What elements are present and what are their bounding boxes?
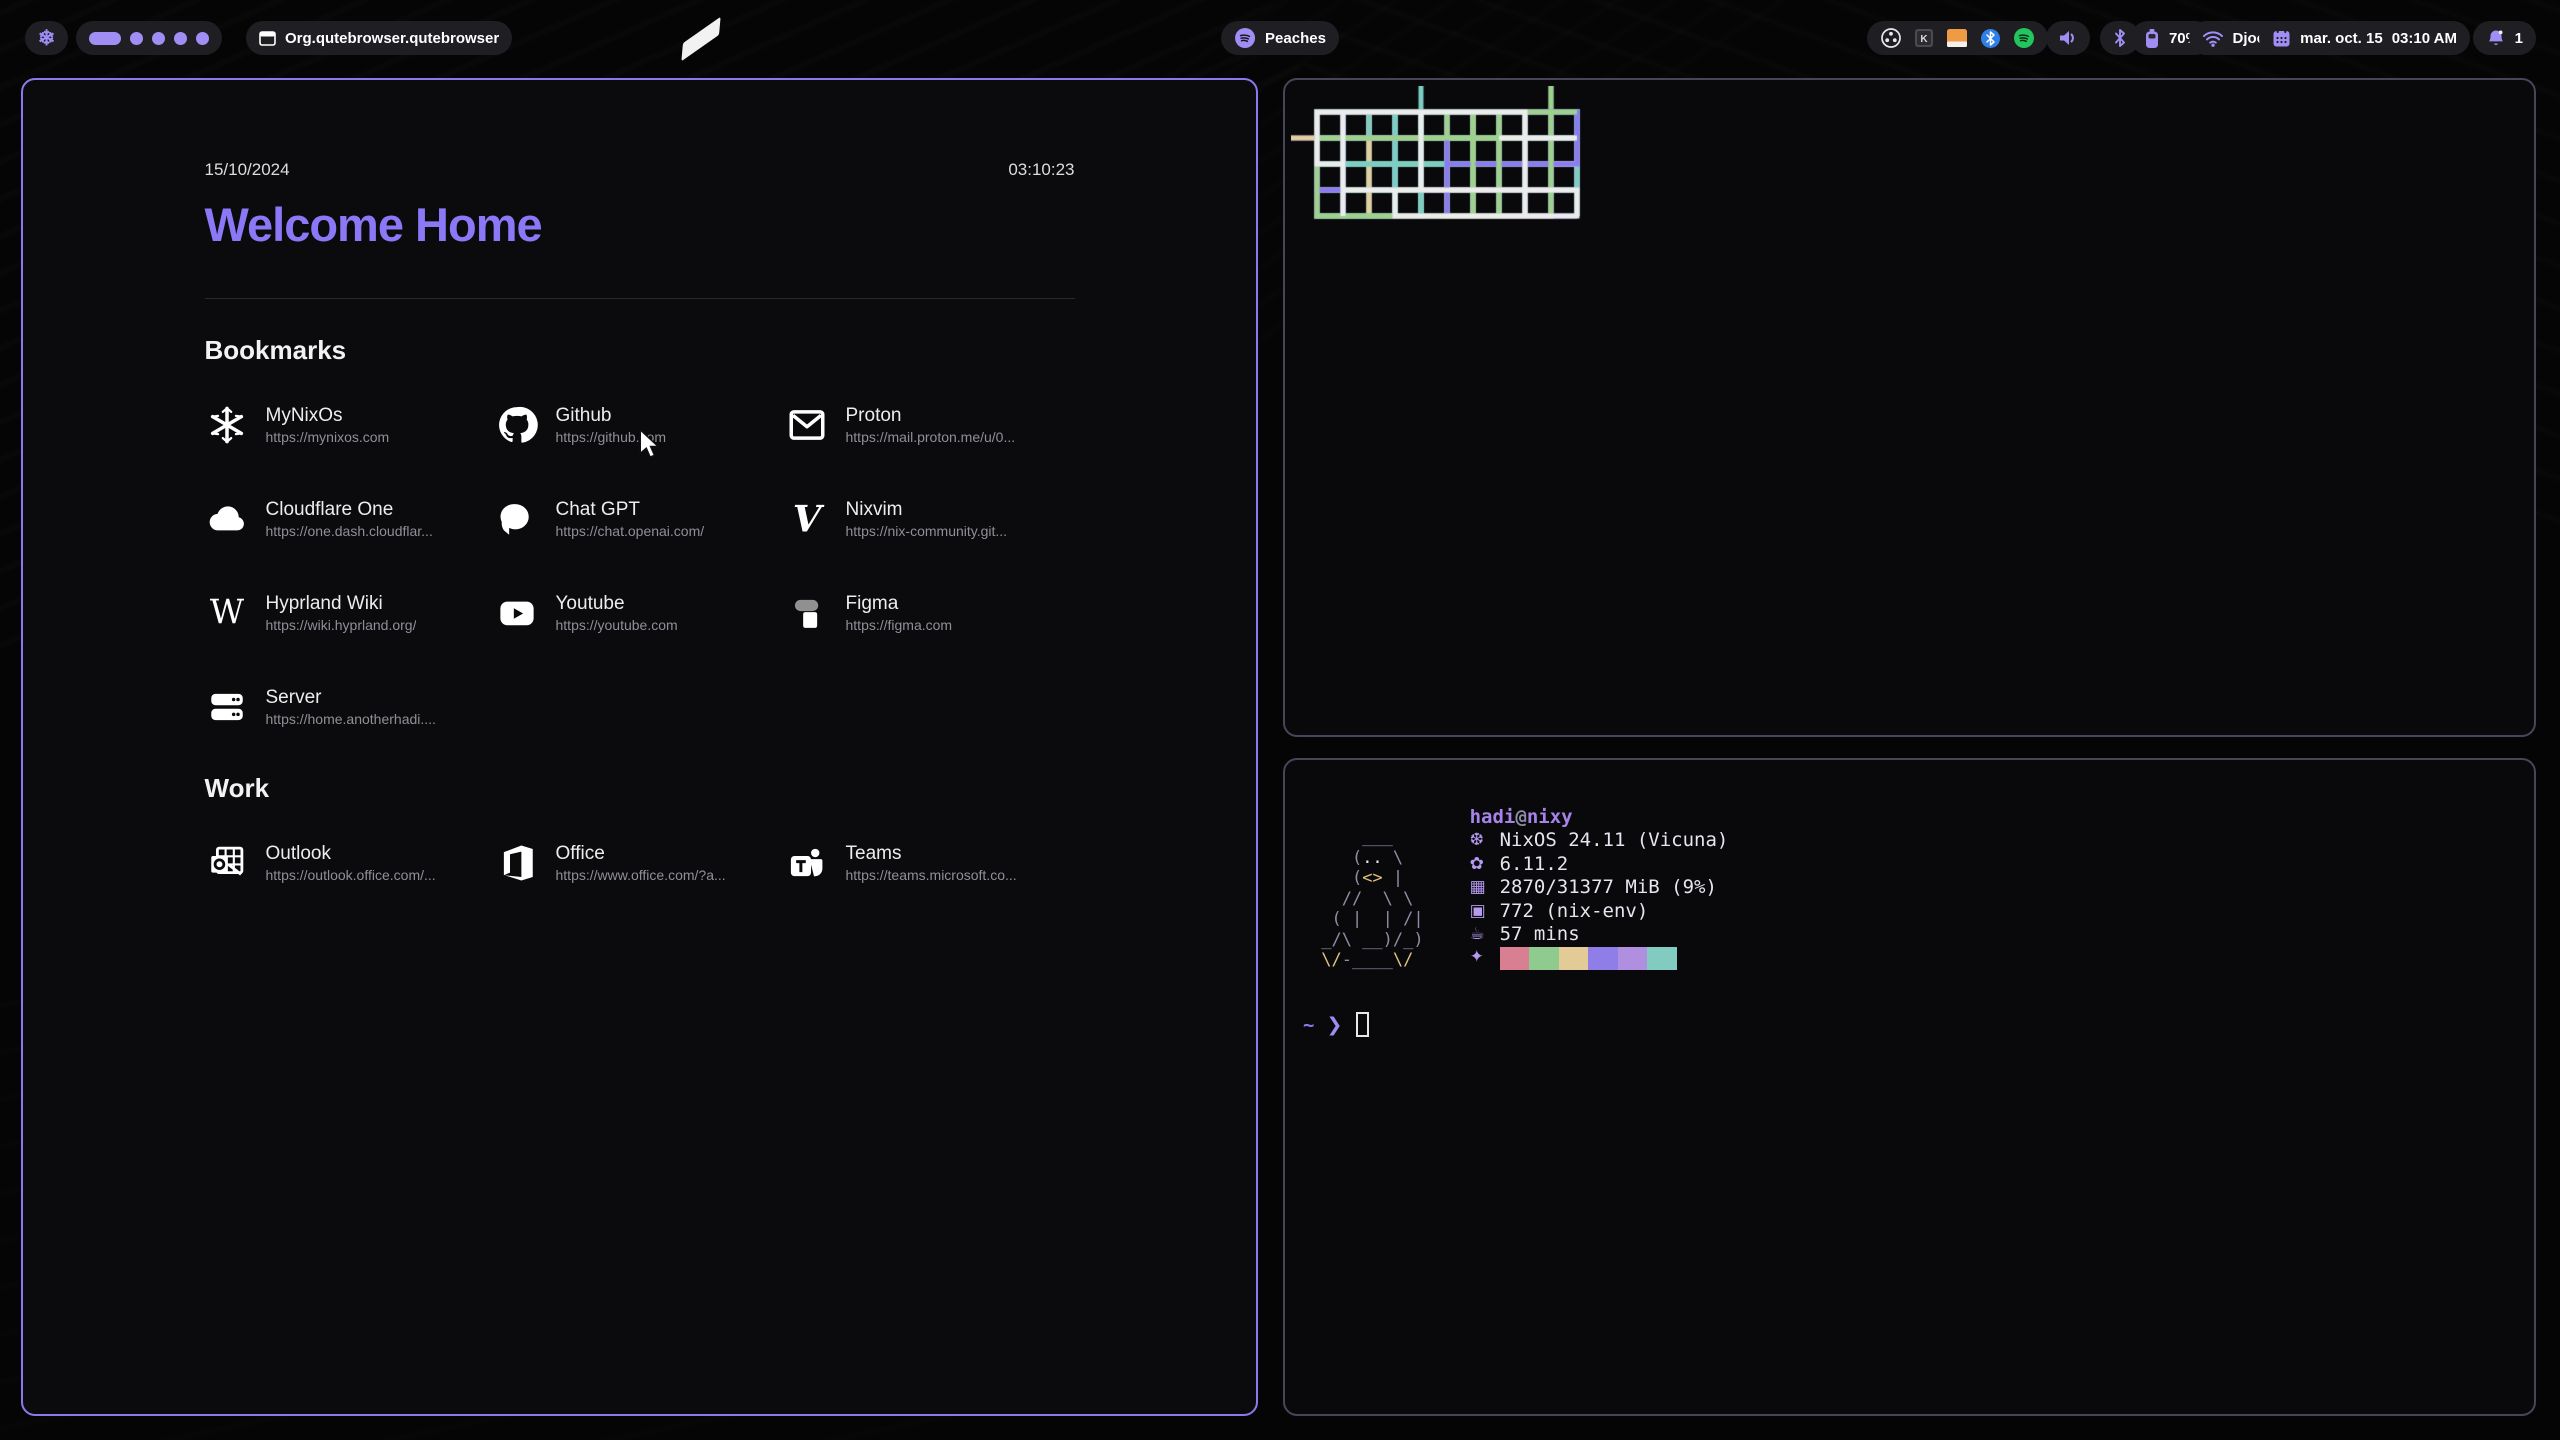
bookmark-name: Figma — [846, 593, 899, 614]
pipes-terminal-window — [1283, 78, 2536, 737]
terminal-color-swatch — [1559, 947, 1589, 970]
workspace-switcher[interactable] — [76, 21, 222, 55]
bookmark-item[interactable]: VNixvimhttps://nix-community.git... — [785, 489, 1075, 549]
bell-icon — [2486, 28, 2506, 48]
teams-icon — [785, 841, 829, 885]
fastfetch-output: ___ (.. \ (<> | // \ \ ( | | /| _/\ __)/… — [1285, 760, 2534, 971]
qutebrowser-window: 15/10/2024 03:10:23 Welcome Home Bookmar… — [21, 78, 1258, 1416]
office-icon — [495, 841, 539, 885]
memory-icon: ▦ — [1470, 876, 1500, 899]
terminal-color-swatch — [1588, 947, 1618, 970]
workspace-indicator[interactable] — [152, 32, 165, 45]
spotify-icon — [1234, 27, 1256, 49]
bookmark-name: Youtube — [556, 593, 625, 614]
bookmark-name: Nixvim — [846, 499, 903, 520]
bookmark-item[interactable]: WHyprland Wikihttps://wiki.hyprland.org/ — [205, 583, 495, 643]
bookmark-item[interactable]: MyNixOshttps://mynixos.com — [205, 395, 495, 455]
fetch-info-text: 772 (nix-env) — [1500, 900, 1649, 923]
workspace-indicator-active[interactable] — [89, 32, 121, 45]
bookmark-name: Cloudflare One — [266, 499, 394, 520]
wikipedia-icon: W — [205, 591, 249, 635]
notification-count: 1 — [2515, 30, 2523, 47]
section-heading: Work — [205, 773, 1075, 803]
terminal-cursor — [1356, 1012, 1369, 1037]
bookmark-item[interactable]: Chat GPThttps://chat.openai.com/ — [495, 489, 785, 549]
bookmark-item[interactable]: Protonhttps://mail.proton.me/u/0... — [785, 395, 1075, 455]
bookmark-name: Outlook — [266, 843, 331, 864]
bookmark-name: Hyprland Wiki — [266, 593, 383, 614]
svg-text:V: V — [792, 498, 824, 540]
packages-icon: ▣ — [1470, 900, 1500, 923]
fetch-terminal-window[interactable]: ___ (.. \ (<> | // \ \ ( | | /| _/\ __)/… — [1283, 758, 2536, 1416]
bookmark-item[interactable]: Serverhttps://home.anotherhadi.... — [205, 677, 495, 737]
terminal-color-swatch — [1500, 947, 1530, 970]
bookmark-url: https://www.office.com/?a... — [556, 866, 726, 885]
bookmark-name: Server — [266, 687, 322, 708]
svg-text:W: W — [209, 593, 244, 632]
file-manager-tray-icon[interactable] — [1946, 28, 1968, 48]
fetch-info-text: 57 mins — [1500, 923, 1580, 946]
fetch-info-line: ✦ — [1470, 946, 1729, 969]
fetch-info-text: 6.11.2 — [1500, 853, 1569, 876]
fetch-info-line: ▦2870/31377 MiB (9%) — [1470, 876, 1729, 899]
bookmark-item[interactable]: Teamshttps://teams.microsoft.co... — [785, 833, 1075, 893]
os-icon: ❆ — [1470, 829, 1500, 852]
shell-prompt[interactable]: ~ ❯ — [1303, 1012, 1369, 1037]
fetch-info-line: ✿6.11.2 — [1470, 853, 1729, 876]
terminal-color-swatch — [1647, 947, 1677, 970]
cloud-icon — [205, 497, 249, 541]
bookmark-name: Github — [556, 405, 612, 426]
bookmark-name: Office — [556, 843, 605, 864]
system-tray[interactable]: K — [1867, 21, 2048, 55]
server-icon — [205, 685, 249, 729]
fetch-info-line: ▣772 (nix-env) — [1470, 900, 1729, 923]
start-page: 15/10/2024 03:10:23 Welcome Home Bookmar… — [205, 80, 1075, 893]
now-playing-pill[interactable]: Peaches — [1221, 21, 1339, 55]
bookmark-name: Chat GPT — [556, 499, 640, 520]
bookmark-item[interactable]: Officehttps://www.office.com/?a... — [495, 833, 785, 893]
bookmark-url: https://youtube.com — [556, 616, 678, 635]
fetch-info-text: 2870/31377 MiB (9%) — [1500, 876, 1717, 899]
speaker-icon — [2058, 29, 2078, 47]
keepassxc-tray-icon[interactable]: K — [1914, 28, 1934, 48]
fetch-user: hadi — [1470, 806, 1516, 829]
nix-icon — [205, 403, 249, 447]
active-window-title: Org.qutebrowser.qutebrowser — [285, 30, 499, 47]
clock-pill[interactable]: mar. oct. 15 03:10 AM — [2259, 21, 2470, 55]
workspace-indicator[interactable] — [130, 32, 143, 45]
page-title: Welcome Home — [205, 196, 1075, 254]
battery-icon — [2144, 28, 2160, 49]
tux-ascii-art: ___ (.. \ (<> | // \ \ ( | | /| _/\ __)/… — [1311, 827, 1424, 971]
bookmark-url: https://teams.microsoft.co... — [846, 866, 1017, 885]
prompt-symbol: ❯ — [1326, 1014, 1342, 1036]
bookmark-url: https://mail.proton.me/u/0... — [846, 428, 1016, 447]
bookmark-url: https://home.anotherhadi.... — [266, 710, 436, 729]
outlook-icon — [205, 841, 249, 885]
bookmark-grid: Outlookhttps://outlook.office.com/...Off… — [205, 833, 1075, 893]
palette-icon: ✦ — [1470, 946, 1500, 969]
bookmark-item[interactable]: Cloudflare Onehttps://one.dash.cloudflar… — [205, 489, 495, 549]
nix-snowflake-icon: ❄ — [38, 26, 56, 51]
user-host-line: hadi@nixy — [1470, 806, 1729, 829]
calendar-icon — [2272, 28, 2291, 48]
window-icon — [259, 31, 276, 46]
nix-menu-button[interactable]: ❄ — [25, 21, 68, 55]
fetch-info-line: ❆NixOS 24.11 (Vicuna) — [1470, 829, 1729, 852]
divider — [205, 298, 1075, 299]
terminal-color-swatch — [1529, 947, 1559, 970]
notifications-pill[interactable]: 1 — [2473, 21, 2536, 55]
start-page-date: 15/10/2024 — [205, 160, 290, 182]
bookmark-url: https://chat.openai.com/ — [556, 522, 705, 541]
bookmark-url: https://one.dash.cloudflar... — [266, 522, 433, 541]
bookmark-url: https://figma.com — [846, 616, 953, 635]
terminal-color-swatch — [1618, 947, 1648, 970]
bookmark-item[interactable]: Outlookhttps://outlook.office.com/... — [205, 833, 495, 893]
workspace-indicator[interactable] — [196, 32, 209, 45]
wifi-icon — [2202, 30, 2224, 47]
obs-tray-icon[interactable] — [1880, 27, 1902, 49]
spotify-tray-icon[interactable] — [2013, 27, 2035, 49]
github-icon — [495, 403, 539, 447]
bookmark-url: https://wiki.hyprland.org/ — [266, 616, 417, 635]
chat-icon — [495, 497, 539, 541]
fetch-at: @ — [1515, 806, 1526, 829]
youtube-icon — [495, 591, 539, 635]
start-page-clock: 03:10:23 — [1008, 160, 1074, 182]
section-heading: Bookmarks — [205, 335, 1075, 365]
top-bar: ❄ Org.qutebrowser.qutebrowser Peaches K … — [0, 0, 2560, 66]
nixvim-icon: V — [785, 497, 829, 541]
bluetooth-tray-icon[interactable] — [1980, 28, 2001, 49]
bookmark-name: MyNixOs — [266, 405, 343, 426]
kernel-icon: ✿ — [1470, 853, 1500, 876]
bookmark-item[interactable]: Youtubehttps://youtube.com — [495, 583, 785, 643]
svg-text:K: K — [1920, 34, 1928, 45]
fetch-info-line: ☕57 mins — [1470, 923, 1729, 946]
bookmark-name: Proton — [846, 405, 902, 426]
now-playing-label: Peaches — [1265, 30, 1326, 47]
workspace-indicator[interactable] — [174, 32, 187, 45]
volume-pill[interactable] — [2046, 21, 2090, 55]
bookmark-item[interactable]: Figmahttps://figma.com — [785, 583, 1075, 643]
fetch-info-text: NixOS 24.11 (Vicuna) — [1500, 829, 1729, 852]
bookmark-name: Teams — [846, 843, 902, 864]
figma-icon — [785, 591, 829, 635]
fetch-host: nixy — [1527, 806, 1573, 829]
clock-time: 03:10 AM — [2392, 30, 2457, 47]
bluetooth-icon — [2113, 28, 2127, 48]
clock-date: mar. oct. 15 — [2300, 30, 2383, 47]
date-time-row: 15/10/2024 03:10:23 — [205, 160, 1075, 182]
mouse-cursor — [637, 430, 663, 465]
bookmark-url: https://nix-community.git... — [846, 522, 1008, 541]
bookmark-url: https://outlook.office.com/... — [266, 866, 436, 885]
mail-icon — [785, 403, 829, 447]
prompt-path: ~ — [1303, 1014, 1314, 1036]
pipes-screensaver — [1291, 86, 1591, 236]
bookmark-url: https://mynixos.com — [266, 428, 390, 447]
uptime-icon: ☕ — [1470, 923, 1500, 946]
active-window-pill[interactable]: Org.qutebrowser.qutebrowser — [246, 21, 512, 55]
